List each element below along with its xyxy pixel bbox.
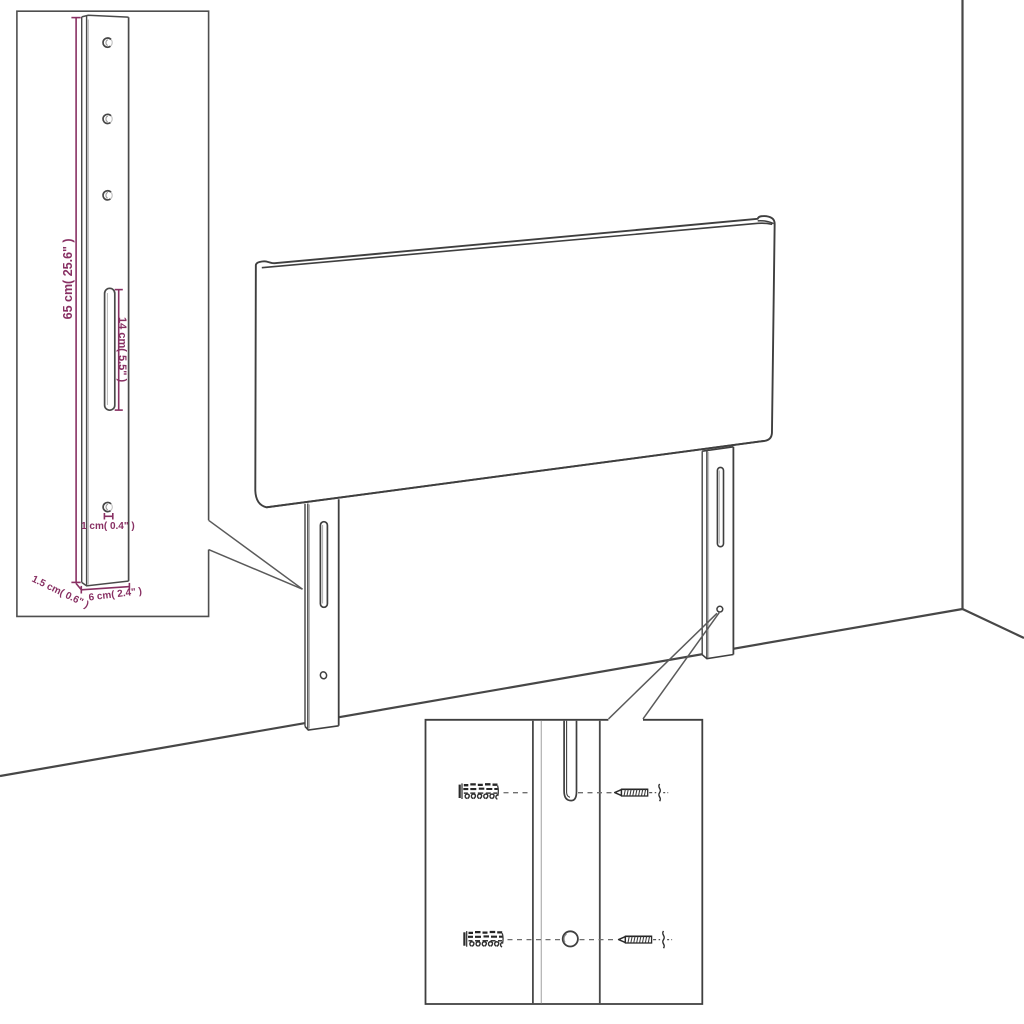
svg-text:1 cm( 0.4" ): 1 cm( 0.4" ) bbox=[81, 521, 135, 532]
svg-text:14 cm( 5.5" ): 14 cm( 5.5" ) bbox=[116, 317, 128, 382]
svg-text:65 cm( 25.6" ): 65 cm( 25.6" ) bbox=[61, 238, 75, 319]
